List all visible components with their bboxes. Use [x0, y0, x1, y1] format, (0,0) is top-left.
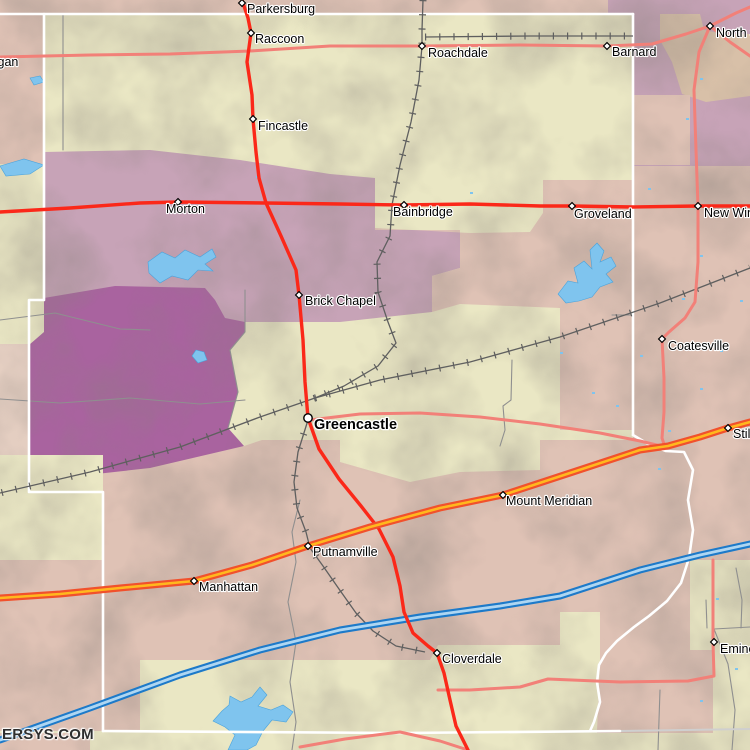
town-label[interactable]: North Salem: [716, 26, 750, 40]
town-label[interactable]: Morton: [166, 202, 205, 216]
town-label[interactable]: Roachdale: [428, 46, 488, 60]
stream-fleck: [686, 118, 689, 120]
town-label[interactable]: New Winchester: [704, 206, 750, 220]
town-roachdale[interactable]: Roachdale: [419, 43, 488, 60]
town-label[interactable]: Brick Chapel: [305, 294, 376, 308]
town-brick-chapel[interactable]: Brick Chapel: [296, 292, 376, 308]
town-label[interactable]: Mount Meridian: [506, 494, 592, 508]
town-label[interactable]: Milligan: [0, 55, 18, 69]
stream-fleck: [700, 700, 703, 702]
town-label[interactable]: Stilesville: [733, 427, 750, 441]
town-bainbridge[interactable]: Bainbridge: [393, 202, 453, 219]
stream-fleck: [648, 188, 651, 190]
town-manhattan[interactable]: Manhattan: [191, 578, 259, 594]
town-parkersburg[interactable]: Parkersburg: [239, 0, 316, 16]
town-greencastle[interactable]: Greencastle: [304, 414, 397, 433]
town-label[interactable]: Fincastle: [258, 119, 308, 133]
town-label[interactable]: Manhattan: [199, 580, 258, 594]
town-label[interactable]: Coatesville: [668, 339, 729, 353]
city-marker-icon[interactable]: [304, 414, 312, 422]
stream-fleck: [616, 405, 619, 407]
stream-fleck: [682, 298, 685, 300]
stream-fleck: [700, 255, 703, 257]
stream-fleck: [740, 300, 743, 302]
stream-fleck: [668, 430, 671, 432]
town-coatesville[interactable]: Coatesville: [659, 336, 730, 353]
town-label[interactable]: Raccoon: [255, 32, 304, 46]
town-raccoon[interactable]: Raccoon: [248, 30, 305, 46]
stream-fleck: [658, 468, 661, 470]
town-label[interactable]: Eminence: [720, 642, 750, 656]
ersys-watermark: ERSYS.COM: [2, 726, 94, 743]
town-label[interactable]: Putnamville: [313, 545, 378, 559]
stream-fleck: [470, 192, 473, 194]
stream-fleck: [592, 392, 595, 394]
stream-fleck: [735, 668, 738, 670]
town-milligan[interactable]: Milligan: [0, 55, 18, 69]
town-morton[interactable]: Morton: [166, 199, 205, 216]
town-label[interactable]: Groveland: [574, 207, 632, 221]
town-label[interactable]: Bainbridge: [393, 205, 453, 219]
county-map-image: ParkersburgRaccoonMilliganFincastleRoach…: [0, 0, 750, 750]
town-cloverdale[interactable]: Cloverdale: [434, 650, 502, 666]
stream-fleck: [700, 388, 703, 390]
town-label[interactable]: Cloverdale: [442, 652, 502, 666]
town-label[interactable]: Barnard: [612, 45, 657, 59]
town-putnamville[interactable]: Putnamville: [305, 543, 378, 559]
town-label[interactable]: Parkersburg: [247, 2, 315, 16]
map-canvas[interactable]: ParkersburgRaccoonMilliganFincastleRoach…: [0, 0, 750, 750]
town-mount-meridian[interactable]: Mount Meridian: [500, 492, 593, 508]
stream-fleck: [640, 355, 643, 357]
town-label[interactable]: Greencastle: [314, 417, 397, 433]
stream-fleck: [700, 78, 703, 80]
town-barnard[interactable]: Barnard: [604, 43, 657, 59]
stream-fleck: [716, 598, 719, 600]
hillshade-texture: [0, 0, 750, 750]
stream-fleck: [560, 352, 563, 354]
town-fincastle[interactable]: Fincastle: [250, 116, 308, 133]
